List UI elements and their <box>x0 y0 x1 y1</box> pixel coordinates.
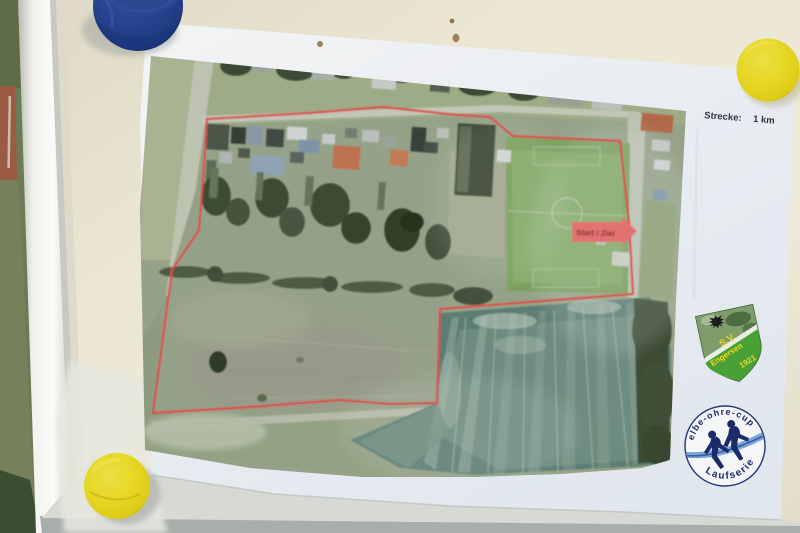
svg-text:1 km: 1 km <box>753 114 775 127</box>
svg-text:Start / Ziel: Start / Ziel <box>576 228 615 238</box>
